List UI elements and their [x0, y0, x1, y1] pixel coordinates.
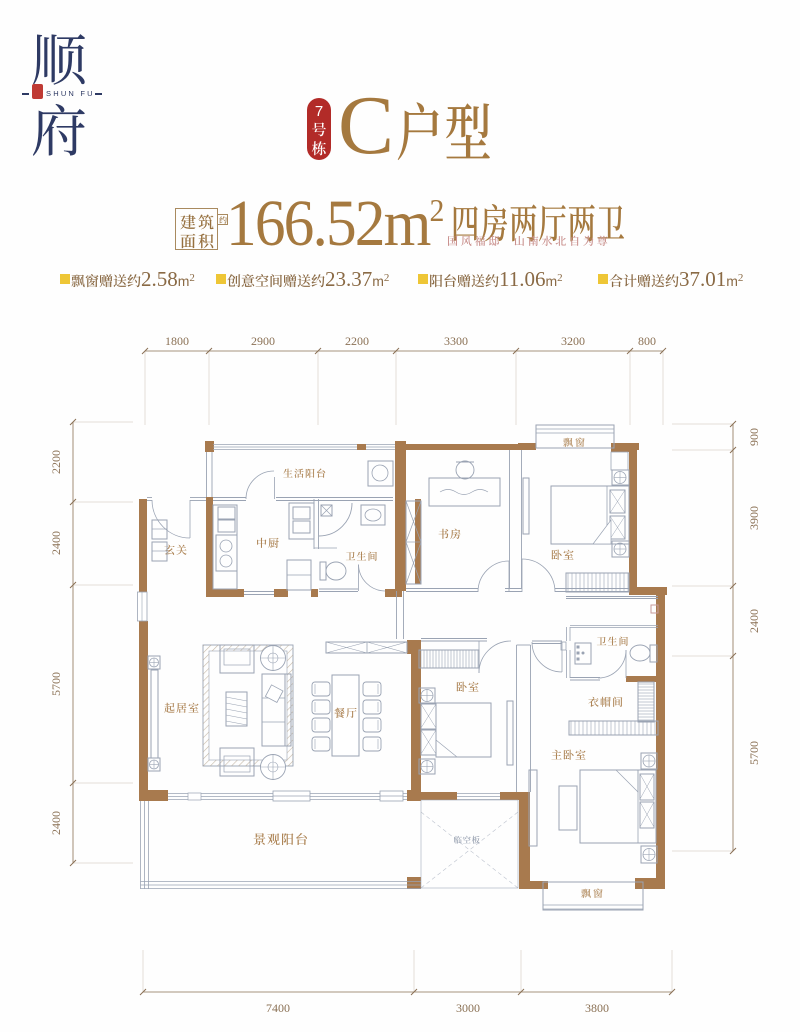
svg-text:2200: 2200: [345, 334, 369, 348]
svg-text:1800: 1800: [165, 334, 189, 348]
svg-text:2900: 2900: [251, 334, 275, 348]
svg-text:书房: 书房: [438, 526, 462, 542]
svg-text:卫生间: 卫生间: [346, 548, 379, 563]
svg-text:800: 800: [638, 334, 656, 348]
svg-text:5700: 5700: [747, 741, 761, 765]
svg-text:2200: 2200: [49, 450, 63, 474]
svg-text:玄关: 玄关: [164, 542, 188, 558]
svg-text:3000: 3000: [456, 1001, 480, 1015]
svg-text:3200: 3200: [561, 334, 585, 348]
svg-text:5700: 5700: [49, 672, 63, 696]
svg-text:中厨: 中厨: [256, 535, 280, 551]
svg-text:飘窗: 飘窗: [581, 885, 605, 900]
svg-text:飘窗: 飘窗: [563, 434, 587, 449]
svg-text:卧室: 卧室: [551, 547, 575, 563]
svg-text:3800: 3800: [585, 1001, 609, 1015]
svg-text:3900: 3900: [747, 506, 761, 530]
svg-text:3300: 3300: [444, 334, 468, 348]
svg-text:卧室: 卧室: [456, 679, 480, 695]
svg-text:2400: 2400: [49, 531, 63, 555]
svg-text:主卧室: 主卧室: [551, 747, 587, 763]
svg-text:2400: 2400: [49, 811, 63, 835]
svg-text:临空板: 临空板: [453, 834, 480, 846]
svg-text:生活阳台: 生活阳台: [283, 465, 327, 480]
svg-text:衣帽间: 衣帽间: [588, 694, 624, 710]
svg-text:起居室: 起居室: [164, 700, 200, 716]
svg-text:2400: 2400: [747, 609, 761, 633]
svg-text:餐厅: 餐厅: [334, 705, 358, 721]
svg-text:卫生间: 卫生间: [597, 633, 630, 648]
svg-text:900: 900: [747, 428, 761, 446]
svg-text:7400: 7400: [266, 1001, 290, 1015]
svg-text:景观阳台: 景观阳台: [253, 829, 309, 848]
